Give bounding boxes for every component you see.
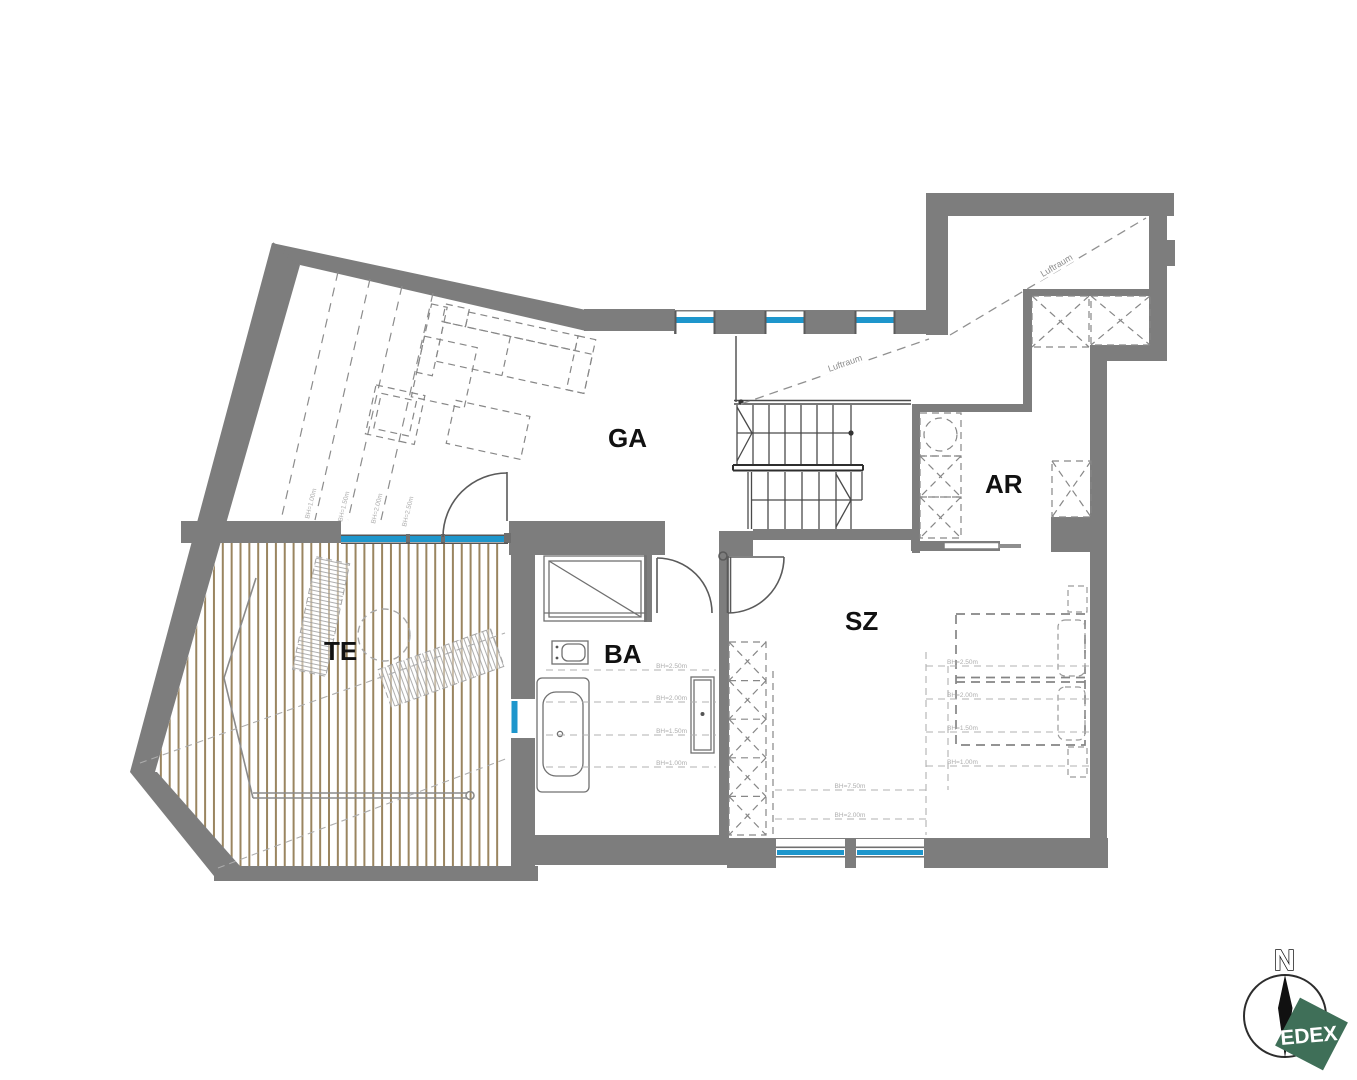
svg-text:BH=2.00m: BH=2.00m: [947, 692, 978, 699]
svg-text:BA: BA: [604, 639, 642, 669]
svg-text:BH=1.00m: BH=1.00m: [947, 759, 978, 766]
svg-text:TE: TE: [324, 636, 357, 666]
svg-text:BH=1.50m: BH=1.50m: [947, 725, 978, 732]
svg-text:BH=2.00m: BH=2.00m: [835, 812, 866, 819]
svg-text:BH=1.00m: BH=1.00m: [656, 760, 687, 767]
svg-text:BH=7.50m: BH=7.50m: [835, 783, 866, 790]
svg-text:BH=2.00m: BH=2.00m: [656, 695, 687, 702]
svg-text:AR: AR: [985, 469, 1023, 499]
svg-text:BH=2.50m: BH=2.50m: [947, 659, 978, 666]
svg-text:N: N: [1274, 945, 1295, 977]
svg-text:SZ: SZ: [845, 606, 878, 636]
svg-text:GA: GA: [608, 423, 647, 453]
svg-text:BH=2.50m: BH=2.50m: [656, 663, 687, 670]
svg-text:BH=1.50m: BH=1.50m: [656, 728, 687, 735]
